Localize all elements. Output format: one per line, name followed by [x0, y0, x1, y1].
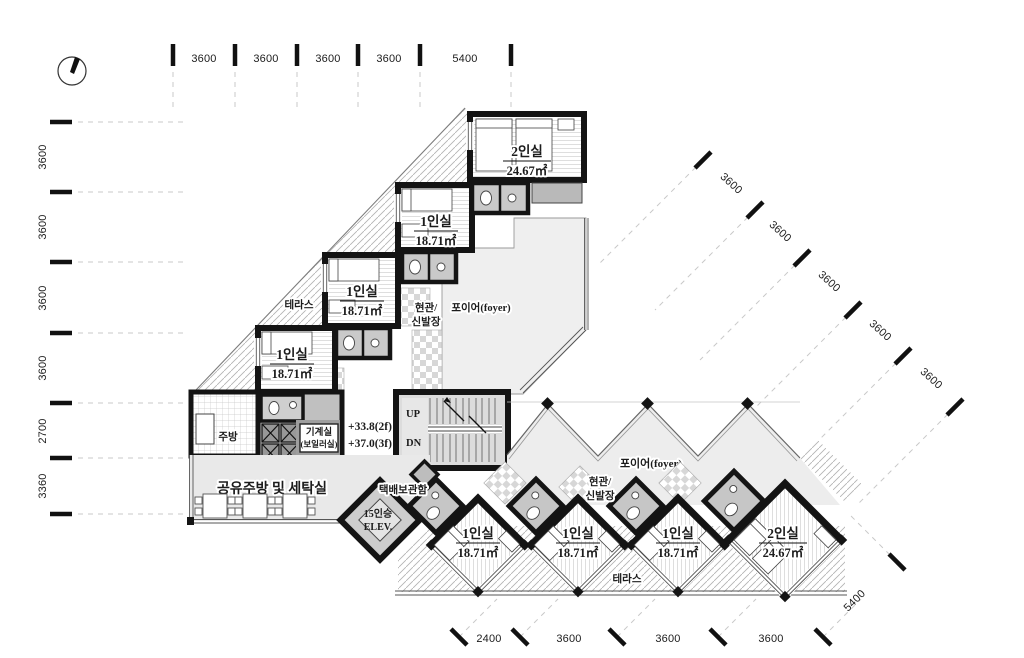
room-upper-4-bath — [472, 183, 528, 213]
entrance-lower-label-1: 현관/ — [589, 475, 612, 488]
kitchen-label: 주방 — [218, 430, 238, 443]
room-upper-4: 2인실 24.67㎡ — [466, 114, 584, 213]
room-lower-3-name: 1인실 — [662, 525, 694, 541]
dim-bottom-right: 5400 — [842, 588, 868, 614]
dim-bottom-2: 3600 — [556, 633, 581, 645]
elevator-label-2: ELEV. — [364, 522, 393, 533]
terrace-lower-label: 테라스 — [613, 572, 642, 585]
room-lower-1-area: 18.71㎡ — [458, 545, 499, 560]
room-lower-2-name: 1인실 — [562, 525, 594, 541]
shared-kitchen-label: 공유주방 및 세탁실 — [217, 480, 327, 497]
terrace-upper-label: 테라스 — [285, 298, 314, 311]
level-3f: +37.0(3f) — [348, 438, 392, 450]
room-upper-2-area: 18.71㎡ — [342, 303, 383, 318]
level-annotations: +33.8(2f) +37.0(3f) — [348, 421, 392, 450]
dim-left-2: 3600 — [37, 214, 49, 239]
room-upper-4-wardrobe — [532, 183, 582, 203]
room-upper-3-name: 1인실 — [420, 213, 452, 229]
room-upper-2-name: 1인실 — [346, 283, 378, 299]
machine-laundry-strip: 기계실 (보일러실) — [258, 392, 342, 464]
machine-room-label-1: 기계실 — [306, 426, 332, 438]
room-upper-1-area: 18.71㎡ — [272, 366, 313, 381]
room-lower-4-name: 2인실 — [767, 525, 799, 541]
dim-top-4: 3600 — [376, 53, 401, 65]
dim-left-4: 3600 — [37, 355, 49, 380]
stairs-dn-label: DN — [406, 438, 422, 449]
stairs-up-label: UP — [406, 409, 421, 420]
dim-right-3: 3600 — [816, 269, 843, 295]
entrance-lower-label-2: 신발장 — [586, 489, 615, 502]
north-arrow-icon — [58, 57, 86, 85]
foyer-upper-label: 포이어(foyer) — [451, 301, 511, 314]
entry-tile-3 — [412, 330, 442, 392]
dim-right-4: 3600 — [867, 318, 894, 344]
dim-top-5: 5400 — [452, 53, 477, 65]
entrance-upper-label-1: 현관/ — [415, 301, 438, 314]
room-upper-1-name: 1인실 — [276, 346, 308, 362]
room-upper-3-area: 18.71㎡ — [416, 233, 457, 248]
room-upper-2-bath — [336, 328, 390, 358]
machine-room-label-2: (보일러실) — [301, 439, 338, 449]
dim-top-2: 3600 — [253, 53, 278, 65]
room-upper-3-bath — [402, 252, 456, 282]
dim-left-6: 3360 — [37, 473, 49, 498]
kitchen: 주방 — [191, 392, 258, 456]
elevator-label-1: 15인승 — [364, 507, 392, 520]
room-lower-3-area: 18.71㎡ — [658, 545, 699, 560]
entrance-upper-label-2: 신발장 — [412, 315, 441, 328]
dim-top-1: 3600 — [191, 53, 216, 65]
room-lower-2-area: 18.71㎡ — [558, 545, 599, 560]
dim-top-3: 3600 — [315, 53, 340, 65]
dim-left-1: 3600 — [37, 144, 49, 169]
room-lower-4-area: 24.67㎡ — [763, 545, 804, 560]
dim-bottom-1: 2400 — [476, 633, 501, 645]
room-upper-1: 1인실 18.71㎡ — [254, 328, 335, 392]
foyer-lower-label: 포이어(foyer) — [620, 456, 682, 470]
room-lower-1-name: 1인실 — [462, 525, 494, 541]
dim-right-1: 3600 — [718, 171, 745, 197]
dim-right-5: 3600 — [918, 366, 945, 392]
dim-left-5: 2700 — [37, 418, 49, 443]
room-upper-4-area: 24.67㎡ — [507, 163, 548, 178]
dim-bottom-4: 3600 — [758, 633, 783, 645]
room-upper-4-name: 2인실 — [511, 143, 543, 159]
dim-left-3: 3600 — [37, 285, 49, 310]
dim-bottom-3: 3600 — [655, 633, 680, 645]
floor-plan-canvas: 3600 3600 3600 3600 5400 3600 3600 3600 … — [0, 0, 1024, 658]
dining-tables — [195, 494, 315, 518]
dim-right-2: 3600 — [767, 219, 794, 245]
machine-room: 기계실 (보일러실) — [296, 420, 340, 458]
parcel-label: 택배보관함 — [379, 483, 428, 496]
core-bath — [261, 395, 303, 421]
level-2f: +33.8(2f) — [348, 421, 392, 433]
